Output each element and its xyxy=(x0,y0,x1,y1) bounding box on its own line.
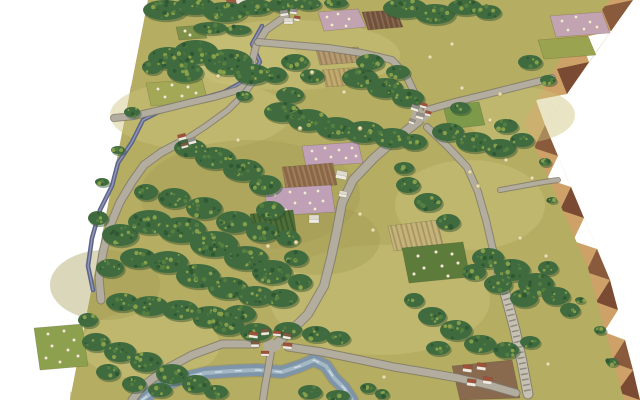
building xyxy=(261,351,269,356)
building xyxy=(467,378,477,386)
building xyxy=(280,9,289,16)
terrain-board-image xyxy=(0,0,640,400)
building xyxy=(251,341,259,347)
building xyxy=(290,9,297,15)
building xyxy=(283,332,292,339)
building xyxy=(309,215,319,223)
building xyxy=(477,362,487,370)
building xyxy=(283,343,292,350)
building xyxy=(273,331,281,337)
terrain-board-photo xyxy=(0,0,640,400)
building xyxy=(284,18,293,24)
building xyxy=(261,329,269,336)
building xyxy=(249,331,259,338)
building xyxy=(483,376,493,384)
building xyxy=(463,364,473,372)
building xyxy=(294,16,301,22)
building xyxy=(339,190,348,197)
